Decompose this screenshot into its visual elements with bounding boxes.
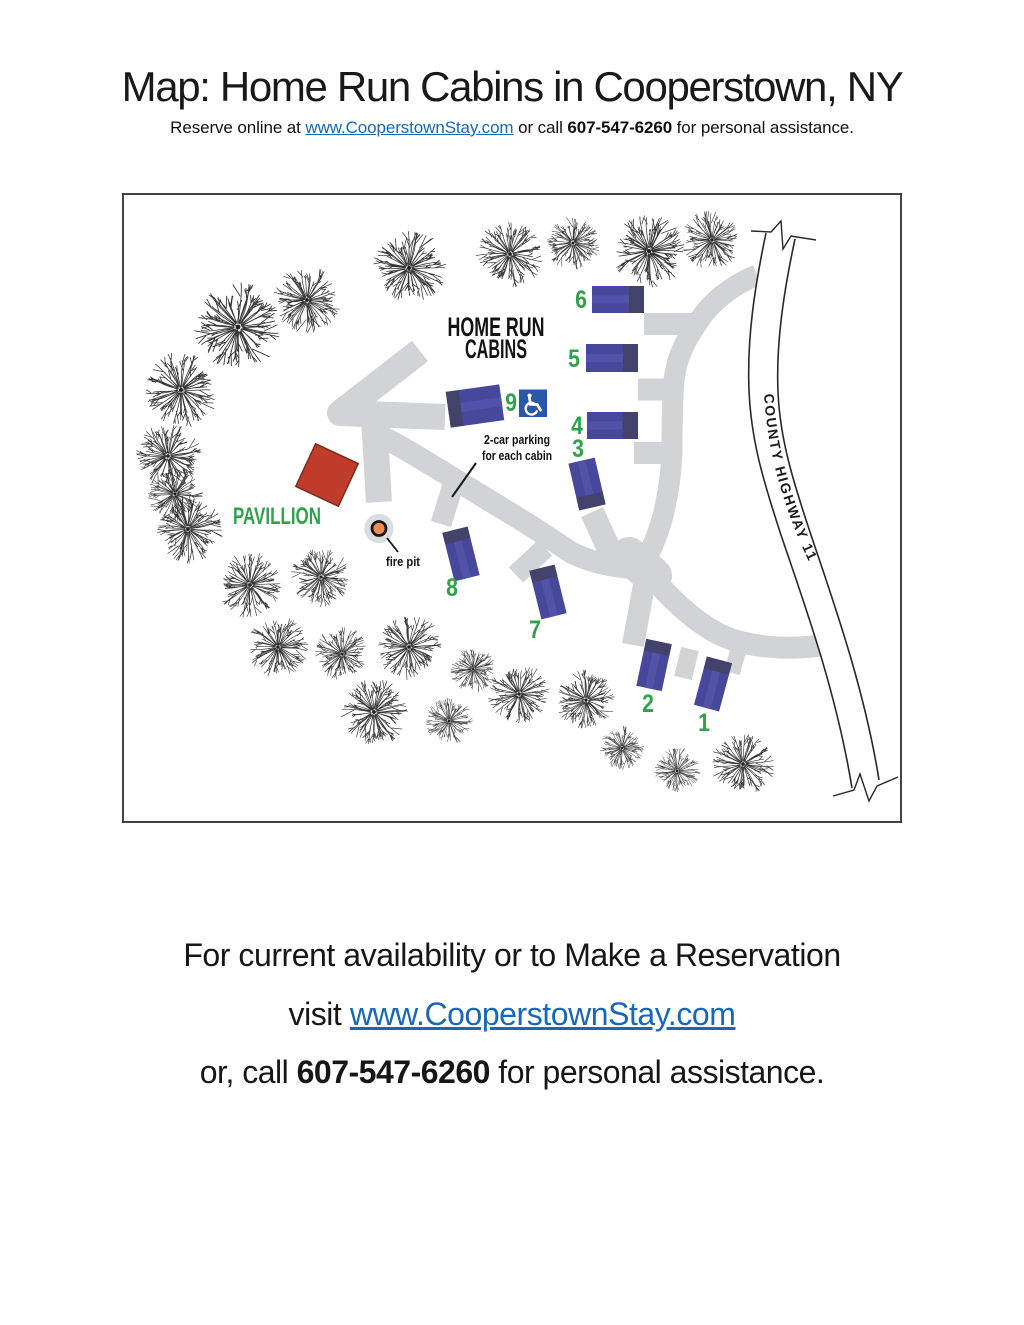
svg-text:2-car parking: 2-car parking: [484, 432, 550, 447]
svg-text:9: 9: [505, 388, 517, 416]
svg-text:8: 8: [446, 573, 458, 601]
svg-text:2: 2: [642, 689, 654, 717]
svg-text:PAVILLION: PAVILLION: [233, 503, 321, 530]
svg-text:for each cabin: for each cabin: [482, 448, 552, 463]
svg-text:7: 7: [529, 615, 541, 643]
svg-text:5: 5: [568, 344, 580, 372]
svg-text:CABINS: CABINS: [465, 334, 527, 364]
svg-text:6: 6: [575, 285, 587, 313]
svg-text:1: 1: [698, 708, 710, 736]
svg-text:fire pit: fire pit: [386, 555, 421, 569]
svg-text:3: 3: [572, 434, 584, 462]
